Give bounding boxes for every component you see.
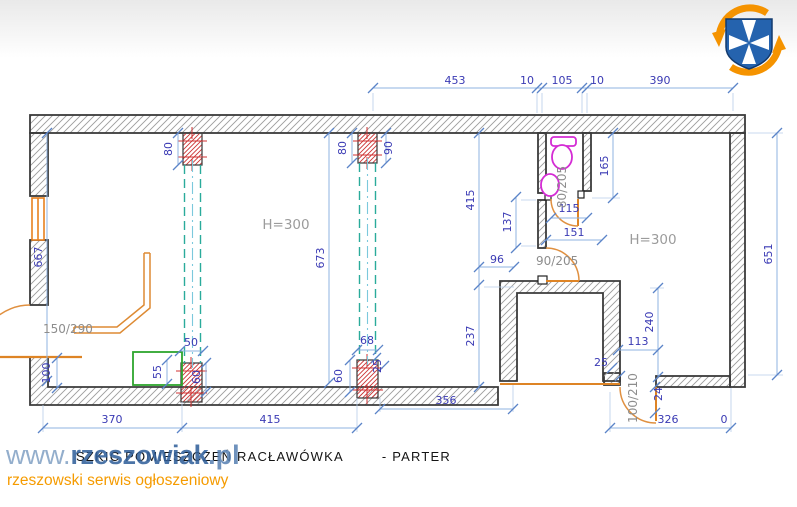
dim-113: 113 xyxy=(628,335,649,348)
dim-90: 90 xyxy=(382,141,395,155)
watermark-tagline: rzeszowski serwis ogłoszeniowy xyxy=(7,472,228,490)
dim-326: 326 xyxy=(658,413,679,426)
door-label-back: 100/210 xyxy=(626,373,640,423)
dim-80a: 80 xyxy=(162,142,175,156)
dim-25b: 25 xyxy=(594,356,608,369)
dim-25a: 25 xyxy=(371,359,384,373)
room-label-right: H=300 xyxy=(629,232,676,248)
dim-10a: 10 xyxy=(520,74,534,87)
watermark: www.rzeszowiak.pl xyxy=(6,440,240,471)
dim-651: 651 xyxy=(762,244,775,265)
watermark-tld: .pl xyxy=(208,440,240,470)
dim-356: 356 xyxy=(436,394,457,407)
dim-453: 453 xyxy=(445,74,466,87)
dim-60b: 60 xyxy=(332,369,345,383)
dim-415b: 415 xyxy=(260,413,281,426)
toilet-bowl xyxy=(552,145,572,169)
dim-60a: 60 xyxy=(190,370,203,384)
dim-105: 105 xyxy=(552,74,573,87)
wall-left-upper xyxy=(30,133,48,196)
kitchen-counter xyxy=(74,253,150,333)
dim-240: 240 xyxy=(643,312,656,333)
door-label-entry: 150/290 xyxy=(43,322,93,336)
logo-shield-cross-icon xyxy=(726,19,772,69)
watermark-www: www. xyxy=(6,440,71,470)
walls xyxy=(30,115,745,405)
dim-151: 151 xyxy=(564,226,585,239)
dim-667: 667 xyxy=(32,247,45,268)
door-label-bathroom: 80/205 xyxy=(555,166,569,208)
wall-bottom-right xyxy=(656,376,730,387)
dim-673: 673 xyxy=(314,248,327,269)
dim-237: 237 xyxy=(464,326,477,347)
wall-bottom-left xyxy=(30,357,498,405)
dim-80b: 80 xyxy=(336,141,349,155)
watermark-name: rzeszowiak xyxy=(71,440,209,470)
wall-bath-right xyxy=(583,133,591,191)
room-label-left: H=300 xyxy=(262,217,309,233)
dim-96: 96 xyxy=(490,253,504,266)
dim-24: 24 xyxy=(652,387,665,401)
page: 453 10 105 10 390 667 651 673 415 237 13… xyxy=(0,0,797,507)
dim-165: 165 xyxy=(598,156,611,177)
drawing-title-suffix: - PARTER xyxy=(382,449,451,464)
door-label-hallway: 90/205 xyxy=(536,254,578,268)
dim-10b: 10 xyxy=(590,74,604,87)
dim-68: 68 xyxy=(360,334,374,347)
wall-top xyxy=(30,115,745,133)
dim-415v: 415 xyxy=(464,190,477,211)
rzeszowiak-logo xyxy=(709,3,789,77)
pillar-axis-marks xyxy=(176,127,383,407)
beam-lines xyxy=(185,158,376,368)
wall-right xyxy=(730,133,745,387)
dim-137: 137 xyxy=(501,212,514,233)
dim-100: 100 xyxy=(40,363,53,384)
dim-370: 370 xyxy=(102,413,123,426)
window-left xyxy=(32,198,44,240)
dim-390: 390 xyxy=(650,74,671,87)
dim-0: 0 xyxy=(721,413,728,426)
dim-55: 55 xyxy=(151,365,164,379)
dim-50: 50 xyxy=(184,336,198,349)
floor-plan: 453 10 105 10 390 667 651 673 415 237 13… xyxy=(0,0,797,445)
